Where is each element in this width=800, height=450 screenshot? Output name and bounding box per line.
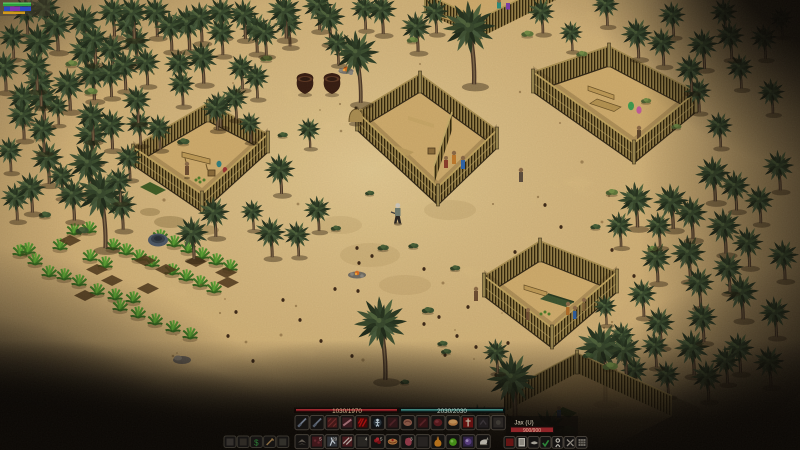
svg-text:1030/1970: 1030/1970 (332, 408, 362, 415)
svg-text:900/900: 900/900 (523, 428, 541, 434)
svg-text:$: $ (254, 439, 259, 448)
svg-text:2030/2030: 2030/2030 (437, 408, 467, 415)
svg-text:20: 20 (332, 437, 338, 442)
svg-text:Jax (U): Jax (U) (514, 421, 533, 427)
